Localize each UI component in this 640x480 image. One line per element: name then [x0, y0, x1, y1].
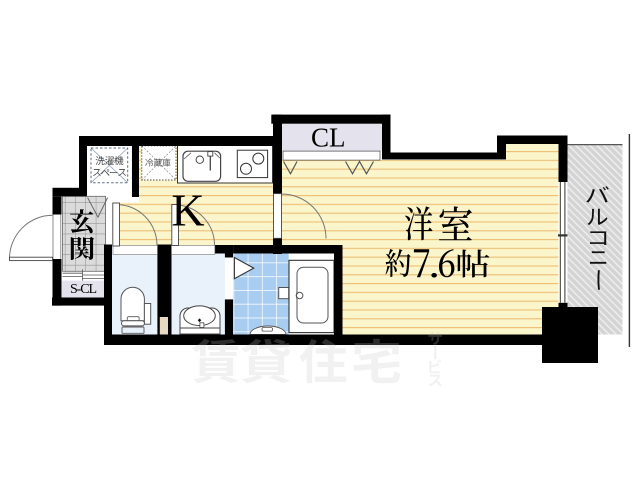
svg-text:S-CL: S-CL	[70, 282, 97, 297]
svg-text:K: K	[171, 185, 204, 236]
svg-text:CL: CL	[311, 123, 346, 153]
